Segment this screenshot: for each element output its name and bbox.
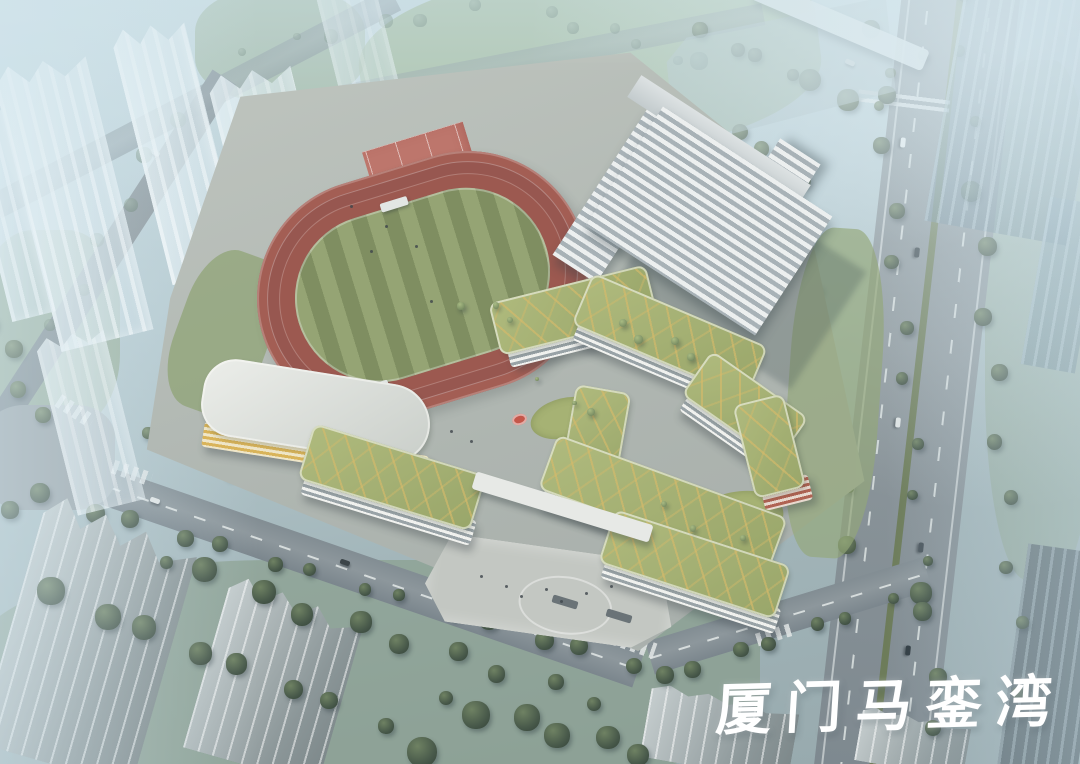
tree [252, 580, 276, 604]
tree [1, 501, 18, 518]
tree [896, 372, 909, 385]
tree [1004, 490, 1019, 505]
tree [740, 535, 746, 541]
tree [189, 642, 212, 665]
tree [95, 604, 121, 630]
tree [684, 661, 701, 678]
soccer-field [274, 167, 571, 403]
tree [548, 674, 564, 690]
tree [544, 723, 569, 748]
tree [488, 665, 505, 682]
person [430, 300, 433, 303]
tree [212, 536, 228, 552]
tree [873, 137, 890, 154]
tree [874, 101, 885, 112]
tree [811, 617, 824, 630]
tree [978, 237, 997, 256]
tree [907, 490, 918, 501]
person [610, 585, 613, 588]
tree [268, 557, 283, 572]
tree [514, 704, 541, 731]
car [918, 542, 924, 552]
person [415, 245, 418, 248]
tree [999, 561, 1013, 575]
tree [378, 718, 394, 734]
aerial-rendering-canvas: 厦门马銮湾 [0, 0, 1080, 764]
tree [393, 589, 405, 601]
tree [350, 611, 371, 632]
person [545, 588, 548, 591]
car [895, 417, 901, 427]
person [505, 585, 508, 588]
tree [132, 615, 156, 639]
tree [991, 364, 1008, 381]
tree [462, 701, 490, 729]
tree [889, 203, 905, 219]
tree [900, 321, 914, 335]
tree [37, 577, 65, 605]
tree [320, 692, 338, 710]
person [585, 592, 588, 595]
tree [1016, 616, 1029, 629]
tree [634, 335, 642, 343]
person [560, 600, 563, 603]
person [480, 575, 483, 578]
tree [733, 642, 749, 658]
tree [587, 408, 595, 416]
tree [413, 14, 426, 27]
tree [572, 401, 576, 405]
tree [177, 530, 194, 547]
person [470, 440, 473, 443]
tree [888, 593, 899, 604]
tree [656, 666, 674, 684]
tree [407, 737, 438, 764]
tree [687, 353, 694, 360]
tree [910, 582, 931, 603]
car [905, 645, 911, 655]
tree [912, 438, 924, 450]
tree [359, 583, 372, 596]
person [350, 205, 353, 208]
tree [10, 381, 27, 398]
tree [923, 556, 933, 566]
tree [449, 642, 468, 661]
tree [761, 637, 776, 652]
tree [291, 603, 314, 626]
tree [884, 255, 899, 270]
tree [839, 612, 851, 624]
tree [5, 340, 23, 358]
tree [35, 407, 51, 423]
watermark: 厦门马銮湾 [714, 656, 1069, 746]
tree [226, 653, 247, 674]
person [450, 430, 453, 433]
person [385, 225, 388, 228]
tree [974, 308, 992, 326]
person [520, 595, 523, 598]
tree [690, 525, 696, 531]
tree [160, 556, 173, 569]
tree [457, 302, 464, 309]
tree [913, 602, 932, 621]
tree [284, 680, 303, 699]
tree [627, 744, 649, 764]
car [914, 247, 920, 257]
tree [671, 337, 679, 345]
car [900, 137, 906, 147]
tree [567, 22, 579, 34]
person [370, 250, 373, 253]
tree [596, 726, 620, 750]
tree [121, 510, 139, 528]
